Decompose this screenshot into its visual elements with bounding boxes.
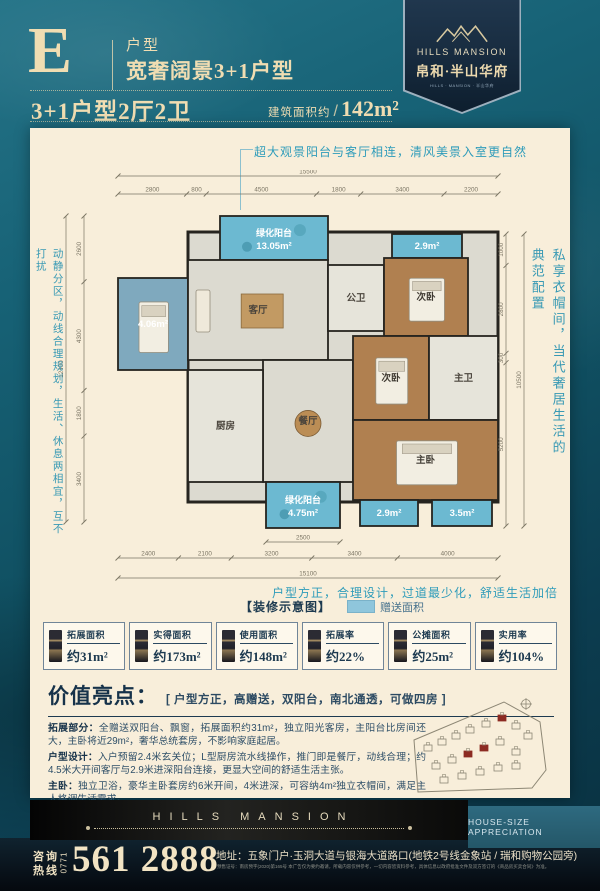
svg-text:餐厅: 餐厅: [297, 415, 318, 427]
brand-name-en: HILLS MANSION: [417, 47, 507, 57]
svg-text:2800: 2800: [498, 302, 505, 317]
side-note-left: 动静分区，动线合理规划，生活、休息两相宜，互不打扰: [32, 248, 66, 538]
svg-text:2.9m²: 2.9m²: [377, 508, 402, 519]
stat-value: 约173m²: [153, 646, 200, 665]
site-plan-sketch: [408, 696, 558, 798]
svg-text:4.06m²: 4.06m²: [138, 319, 168, 330]
mountain-icon: [433, 22, 491, 44]
legal-disclaimer: 预售证号：南房预字(2020)第165号 本广告仅为要约邀请，所载内容仅供参考，…: [217, 864, 589, 870]
svg-text:10500: 10500: [516, 371, 523, 389]
svg-text:3400: 3400: [395, 187, 410, 194]
stat-value: 约25m²: [412, 646, 453, 665]
building-icon: [135, 630, 148, 662]
stat-divider: [499, 643, 552, 644]
footer-brand-bar: HILLS MANSION: [30, 800, 468, 840]
stat-value: 约22%: [326, 646, 365, 665]
stat-label: 拓展面积: [67, 628, 105, 641]
brand-tagline: HILLS · MANSION · 半山华府: [430, 83, 494, 89]
highlights-summary: [ 户型方正，高赠送，双阳台，南北通透，可做四房 ]: [166, 691, 446, 707]
svg-text:3200: 3200: [265, 551, 280, 558]
svg-text:2200: 2200: [464, 187, 479, 194]
header-dotted-line-2: [30, 121, 392, 122]
stat-box: 使用面积约148m²: [216, 622, 298, 670]
built-area: 建筑面积约 / 142m²: [268, 96, 399, 122]
brand-name-cn: 帛和·半山华府: [416, 60, 509, 80]
side-note-right: 私享衣帽间，当代奢居生活的典范配置: [526, 248, 568, 456]
header-dotted-line: [30, 90, 392, 91]
hotline-label: 咨询 热线: [33, 851, 59, 879]
stat-box: 实得面积约173m²: [129, 622, 211, 670]
svg-text:3400: 3400: [76, 472, 83, 487]
svg-text:次卧: 次卧: [381, 372, 401, 384]
content-panel: 超大观景阳台与客厅相连，清风美景入室更自然 绿化阳台13.05m²4.06m²客…: [30, 128, 570, 798]
svg-text:1800: 1800: [76, 406, 83, 421]
footer-dotted-line: [94, 828, 404, 829]
stat-box: 拓展率约22%: [302, 622, 384, 670]
svg-text:主卧: 主卧: [416, 454, 436, 466]
room-balcony-s: [266, 482, 340, 528]
svg-text:厨房: 厨房: [216, 420, 235, 432]
svg-text:2800: 2800: [145, 187, 160, 194]
highlights-paragraphs: 拓展部分：全赠送双阳台、飘窗，拓展面积约31m²，独立阳光客房，主阳台比房间还大…: [48, 723, 426, 807]
stat-label: 使用面积: [240, 628, 278, 641]
balcony-annotation: 超大观景阳台与客厅相连，清风美景入室更自然: [254, 143, 527, 160]
highlight-paragraph: 拓展部分：全赠送双阳台、飘窗，拓展面积约31m²，独立阳光客房，主阳台比房间还大…: [48, 723, 426, 749]
hotline-area-code: 0771: [59, 852, 68, 874]
stat-box: 公摊面积约25m²: [388, 622, 470, 670]
svg-text:800: 800: [191, 187, 202, 194]
footer-tagline: HOUSE-SIZE APPRECIATION: [468, 817, 600, 837]
svg-text:3400: 3400: [348, 551, 363, 558]
stat-divider: [67, 643, 120, 644]
project-address: 地址：五象门户·玉洞大道与银海大道路口(地铁2号线金象站 / 瑞和购物公园旁): [216, 848, 596, 863]
area-divider: /: [334, 103, 338, 121]
unit-type-title: 宽奢阔景3+1户型: [126, 55, 294, 85]
svg-text:1000: 1000: [498, 242, 505, 257]
stat-label: 公摊面积: [412, 628, 450, 641]
svg-text:绿化阳台: 绿化阳台: [256, 227, 292, 238]
svg-text:15100: 15100: [299, 571, 317, 578]
svg-text:15500: 15500: [299, 170, 317, 176]
stat-divider: [153, 643, 206, 644]
building-icon: [481, 630, 494, 662]
svg-text:客厅: 客厅: [247, 304, 268, 316]
legend-title: 【装修示意图】: [240, 598, 331, 615]
svg-text:13.05m²: 13.05m²: [256, 241, 291, 252]
footer-tagline-bar: HOUSE-SIZE APPRECIATION: [468, 806, 600, 848]
stat-divider: [240, 643, 293, 644]
svg-text:3.5m²: 3.5m²: [450, 508, 475, 519]
unit-type-letter: E: [28, 18, 72, 84]
stat-value: 约31m²: [67, 646, 108, 665]
svg-text:绿化阳台: 绿化阳台: [285, 494, 321, 505]
brand-badge: HILLS MANSION 帛和·半山华府 HILLS · MANSION · …: [403, 0, 521, 114]
highlights-section: 价值亮点： [ 户型方正，高赠送，双阳台，南北通透，可做四房 ] 拓展部分：全赠…: [48, 680, 554, 810]
header-divider: [112, 40, 113, 90]
stat-value: 约148m²: [240, 646, 287, 665]
svg-text:次卧: 次卧: [416, 291, 436, 303]
unit-type-label: 户型: [126, 34, 160, 55]
svg-text:4.75m²: 4.75m²: [288, 508, 318, 519]
svg-text:300: 300: [498, 352, 505, 363]
building-icon: [394, 630, 407, 662]
svg-text:4000: 4000: [441, 551, 456, 558]
footer-brand-name: HILLS MANSION: [144, 811, 355, 823]
legend: 【装修示意图】 赠送面积: [240, 598, 424, 615]
highlights-title: 价值亮点：: [48, 680, 158, 710]
stat-label: 实得面积: [153, 628, 191, 641]
built-area-label: 建筑面积约: [268, 104, 331, 120]
building-icon: [49, 630, 62, 662]
svg-text:2100: 2100: [198, 551, 213, 558]
stats-row: 拓展面积约31m²实得面积约173m²使用面积约148m²拓展率约22%公摊面积…: [43, 622, 557, 670]
room-balcony-top: [220, 216, 328, 260]
gift-area-label: 赠送面积: [380, 599, 424, 615]
building-icon: [222, 630, 235, 662]
gift-area-swatch: [347, 600, 375, 613]
svg-text:公卫: 公卫: [346, 293, 366, 304]
stat-box: 拓展面积约31m²: [43, 622, 125, 670]
svg-text:2.9m²: 2.9m²: [415, 241, 440, 252]
hotline-phone-number: 561 2888: [72, 838, 219, 881]
svg-text:5200: 5200: [498, 437, 505, 452]
svg-text:4500: 4500: [254, 187, 269, 194]
svg-text:4300: 4300: [76, 329, 83, 344]
building-icon: [308, 630, 321, 662]
stat-divider: [326, 643, 379, 644]
svg-text:2400: 2400: [141, 551, 156, 558]
svg-text:1800: 1800: [332, 187, 347, 194]
built-area-value: 142m²: [341, 96, 399, 122]
highlight-paragraph: 户型设计：入户预留2.4米玄关位；L型厨房流水线操作，推门即是餐厅，动线合理；约…: [48, 752, 426, 778]
legend-gift-item: 赠送面积: [347, 599, 424, 615]
stat-box: 实用率约104%: [475, 622, 557, 670]
svg-text:主卫: 主卫: [454, 372, 474, 384]
stat-divider: [412, 643, 465, 644]
stat-value: 约104%: [499, 646, 545, 665]
brand-badge-inner: HILLS MANSION 帛和·半山华府 HILLS · MANSION · …: [405, 0, 520, 112]
svg-text:2600: 2600: [76, 241, 83, 256]
stat-label: 实用率: [499, 628, 528, 641]
stat-label: 拓展率: [326, 628, 355, 641]
floor-plan: 绿化阳台13.05m²4.06m²客厅公卫2.9m²次卧餐厅厨房次卧主卫主卧绿化…: [48, 170, 548, 588]
svg-text:2500: 2500: [296, 535, 311, 542]
